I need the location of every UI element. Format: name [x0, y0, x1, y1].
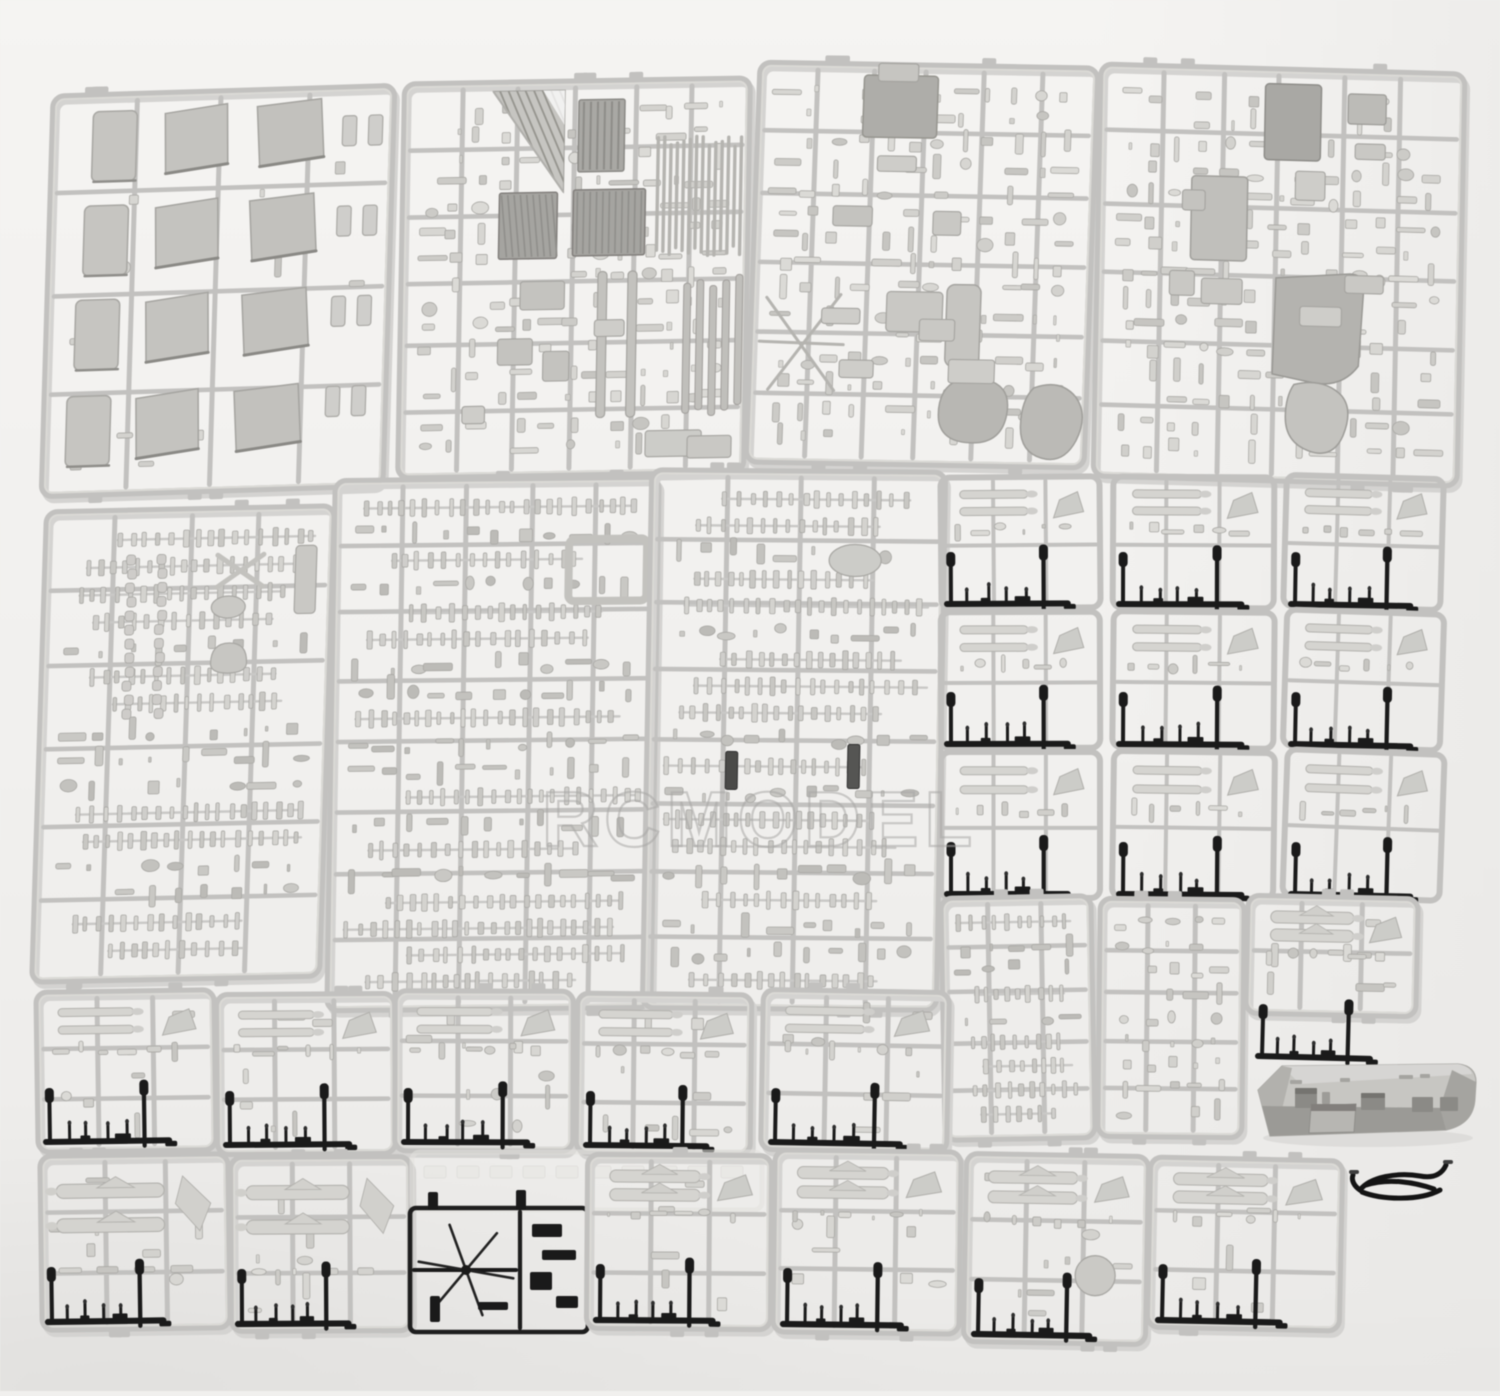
- svg-text:RCMODEL: RCMODEL: [542, 775, 978, 863]
